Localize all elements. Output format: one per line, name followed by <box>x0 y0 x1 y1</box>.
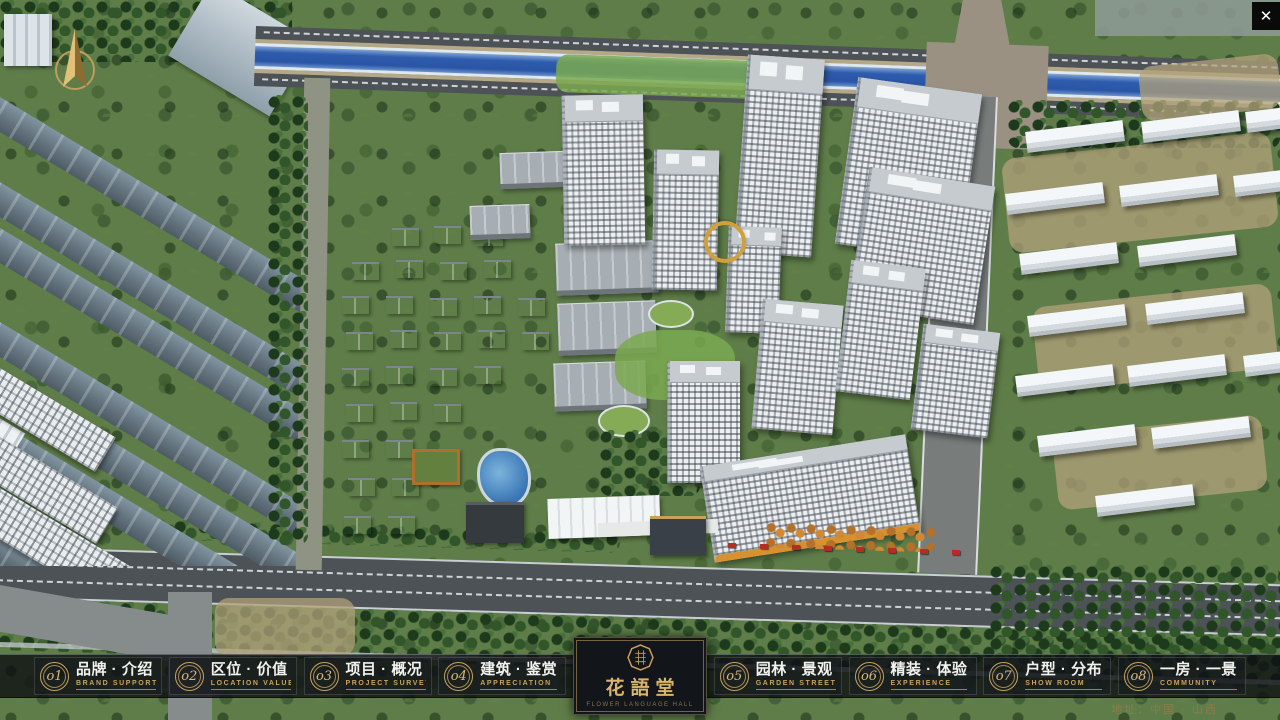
nav-number: o5 <box>726 669 742 684</box>
nav-subtitle: COMMUNITY <box>1160 680 1237 690</box>
logo-subtitle: FLOWER LANGUAGE HALL <box>586 702 693 708</box>
garden-parterre <box>648 300 694 328</box>
villa-building <box>440 262 467 280</box>
nav-number-badge: o5 <box>720 662 749 691</box>
villa-building <box>344 516 371 534</box>
villa-building <box>484 260 511 278</box>
nav-number-badge: o8 <box>1124 662 1153 691</box>
nav-number: o8 <box>1130 669 1146 684</box>
villa-building <box>434 332 461 350</box>
car <box>760 544 768 549</box>
midrise-building <box>469 204 530 240</box>
villa-building <box>478 330 505 348</box>
nav-number: o4 <box>451 669 467 684</box>
villa-building <box>390 330 417 348</box>
tower-building <box>911 324 1000 439</box>
neighbor-housing-area <box>0 50 312 566</box>
car <box>888 548 896 553</box>
swimming-pool <box>477 448 531 508</box>
courtyard-building <box>412 449 460 485</box>
villa-building <box>434 226 461 244</box>
nav-item-floorplan[interactable]: o7 户型 · 分布SHOW ROOM <box>983 657 1111 695</box>
villa-building <box>386 440 413 458</box>
villa-building <box>474 366 501 384</box>
ground <box>215 598 355 656</box>
bottom-menu-bar: o1 品牌 · 介绍BRAND SUPPORT o2 区位 · 价值LOCATI… <box>0 654 1280 698</box>
masterplan-3d-view[interactable] <box>0 0 1280 720</box>
nav-subtitle: GARDEN STREET <box>756 680 836 690</box>
presentation-window: ✕ o1 品牌 · 介绍BRAND SUPPORT o2 区位 · 价值LOCA… <box>0 0 1280 720</box>
nav-title: 区位 · 价值 <box>211 662 291 677</box>
logo-seal-icon <box>627 644 654 671</box>
midrise-building <box>555 240 659 296</box>
clubhouse-building <box>466 502 524 543</box>
tree-cluster <box>990 565 1280 655</box>
villa-building <box>518 298 545 316</box>
nav-number: o1 <box>46 669 62 684</box>
nav-number: o2 <box>181 669 197 684</box>
tree-row <box>268 95 308 545</box>
nav-title: 项目 · 概况 <box>346 662 426 677</box>
villa-building <box>434 404 461 422</box>
nav-item-brand[interactable]: o1 品牌 · 介绍BRAND SUPPORT <box>34 657 162 695</box>
villa-building <box>346 404 373 422</box>
car <box>856 547 864 552</box>
villa-building <box>352 262 379 280</box>
nav-number-badge: o6 <box>855 662 884 691</box>
compass-icon <box>45 24 105 121</box>
nav-item-garden[interactable]: o5 园林 · 景观GARDEN STREET <box>714 657 842 695</box>
villa-building <box>346 332 373 350</box>
villa-building <box>342 296 369 314</box>
entrance-gate <box>650 516 706 555</box>
villa-building <box>474 296 501 314</box>
villa-building <box>388 516 415 534</box>
nav-number: o3 <box>316 669 332 684</box>
villa-building <box>342 368 369 386</box>
nav-subtitle: EXPERIENCE <box>891 680 968 690</box>
nav-number-badge: o7 <box>989 662 1018 691</box>
villa-building <box>392 228 419 246</box>
nav-title: 一房 · 一景 <box>1160 662 1237 677</box>
nav-number: o6 <box>861 669 877 684</box>
villa-building <box>430 368 457 386</box>
project-logo: 花語堂 FLOWER LANGUAGE HALL <box>573 637 707 715</box>
nav-number-badge: o3 <box>310 662 339 691</box>
nav-title: 园林 · 景观 <box>756 662 836 677</box>
nav-title: 户型 · 分布 <box>1025 662 1102 677</box>
tower-building <box>835 260 926 400</box>
nav-item-interior[interactable]: o6 精装 · 体验EXPERIENCE <box>849 657 977 695</box>
nav-number-badge: o4 <box>444 662 473 691</box>
slab-building <box>1015 364 1115 397</box>
logo-title: 花語堂 <box>599 673 680 700</box>
villa-building <box>342 440 369 458</box>
car <box>920 549 928 554</box>
villa-building <box>348 478 375 496</box>
nav-item-rooms[interactable]: o8 一房 · 一景COMMUNITY <box>1118 657 1246 695</box>
car <box>792 545 800 550</box>
nav-subtitle: SHOW ROOM <box>1025 680 1102 690</box>
car <box>952 550 960 555</box>
nav-item-architecture[interactable]: o4 建筑 · 鉴赏APPRECIATION <box>438 657 566 695</box>
villa-building <box>522 332 549 350</box>
villa-building <box>430 298 457 316</box>
nav-subtitle: BRAND SUPPORT <box>76 680 156 690</box>
villa-building <box>386 366 413 384</box>
nav-title: 建筑 · 鉴赏 <box>480 662 557 677</box>
road <box>952 0 1012 58</box>
villa-building <box>390 402 417 420</box>
nav-title: 精装 · 体验 <box>891 662 968 677</box>
midrise-building <box>499 151 564 189</box>
nav-item-project[interactable]: o3 项目 · 概况PROJECT SURVEY <box>304 657 432 695</box>
nav-subtitle: LOCATION VALUE <box>211 680 291 690</box>
close-button[interactable]: ✕ <box>1252 2 1280 30</box>
nav-number-badge: o1 <box>40 662 69 691</box>
project-address: 地址：中国 · 山西 <box>1111 701 1218 717</box>
autumn-tree-row <box>765 521 936 552</box>
nav-title: 品牌 · 介绍 <box>76 662 156 677</box>
nav-subtitle: APPRECIATION <box>480 680 557 690</box>
nav-number: o7 <box>996 669 1012 684</box>
villa-building <box>386 296 413 314</box>
villa-building <box>396 260 423 278</box>
nav-item-location[interactable]: o2 区位 · 价值LOCATION VALUE <box>169 657 297 695</box>
nav-subtitle: PROJECT SURVEY <box>346 680 426 690</box>
slab-building <box>1137 234 1237 267</box>
nav-number-badge: o2 <box>175 662 204 691</box>
car <box>728 543 736 548</box>
tower-building <box>562 94 646 245</box>
car <box>824 546 832 551</box>
tower-building <box>751 299 843 436</box>
tower-building <box>652 149 719 290</box>
gold-landscape-feature <box>704 221 746 263</box>
